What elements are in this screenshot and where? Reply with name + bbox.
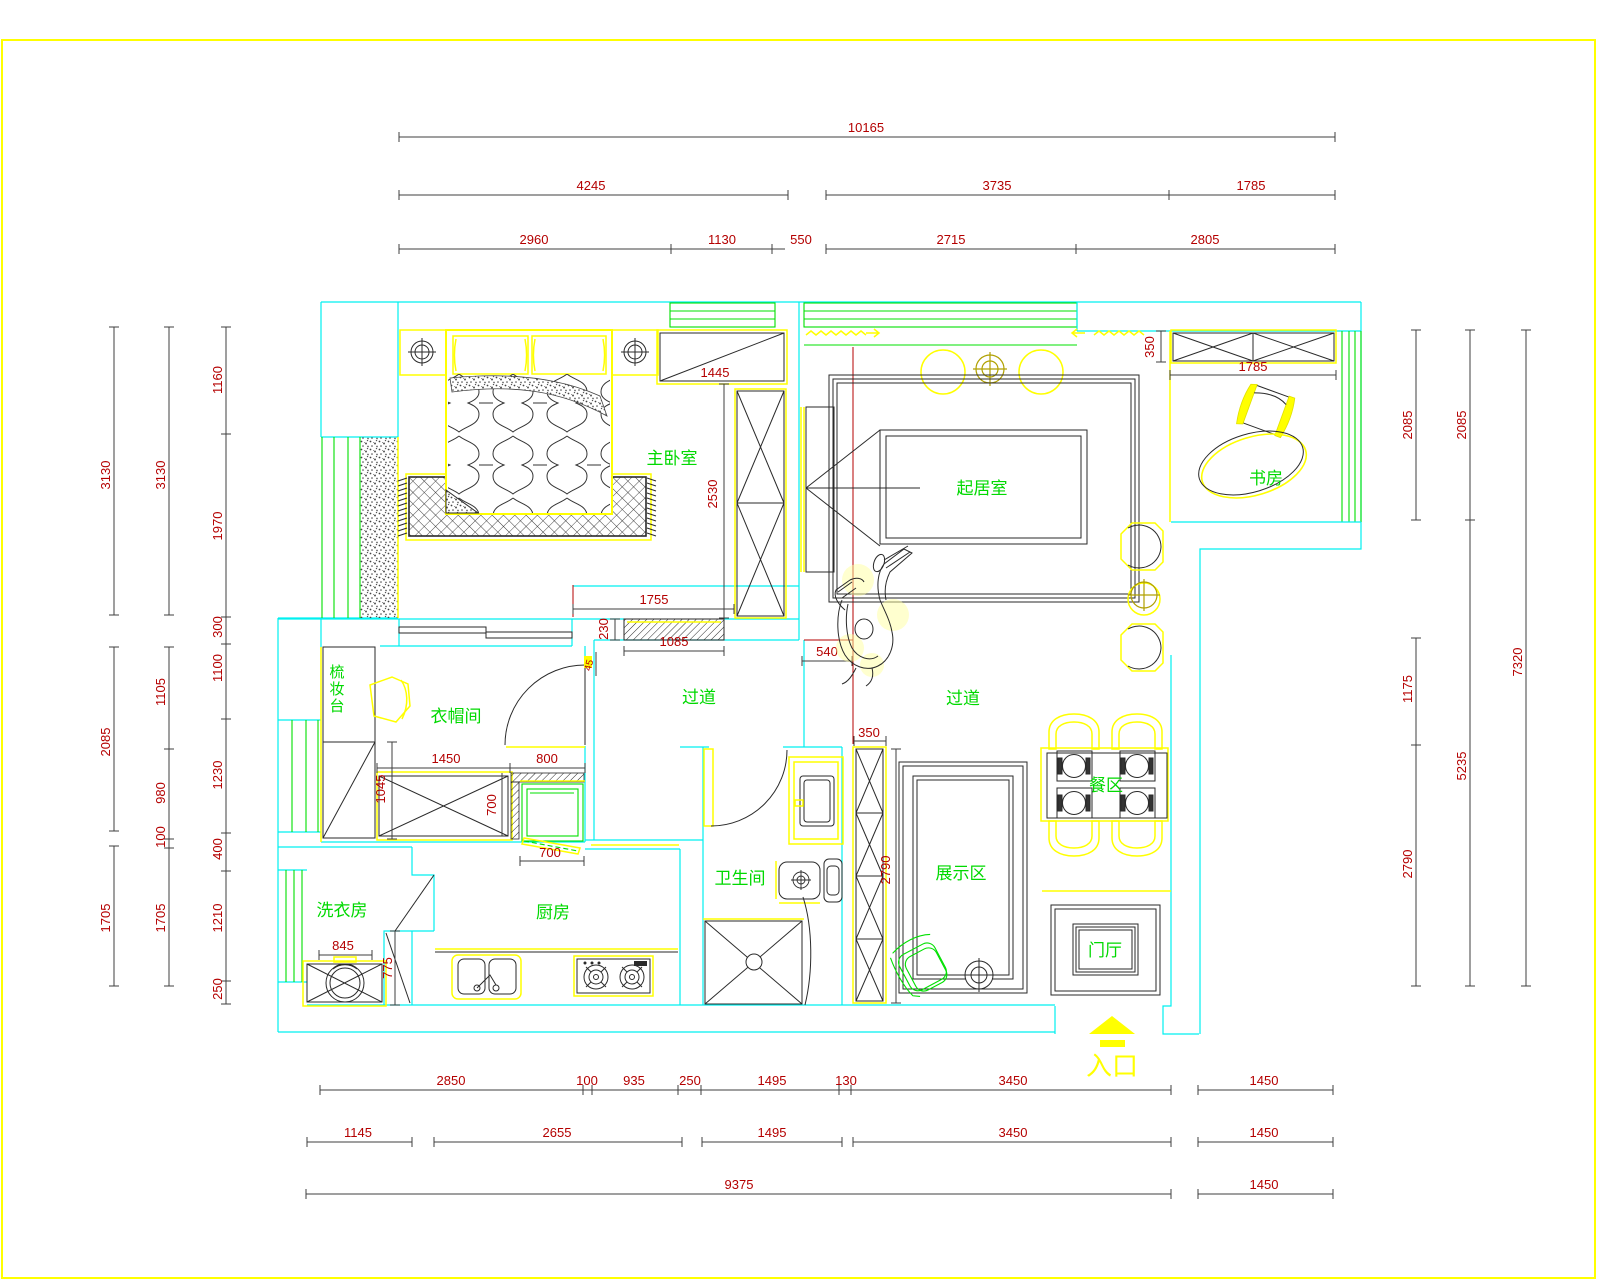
svg-text:2960: 2960 — [520, 232, 549, 247]
svg-text:2085: 2085 — [1400, 411, 1415, 440]
svg-text:门厅: 门厅 — [1088, 941, 1122, 960]
svg-text:主卧室: 主卧室 — [647, 449, 698, 468]
svg-text:1450: 1450 — [1250, 1073, 1279, 1088]
svg-text:7320: 7320 — [1510, 648, 1525, 677]
svg-text:130: 130 — [835, 1073, 857, 1088]
svg-text:3735: 3735 — [983, 178, 1012, 193]
svg-text:3450: 3450 — [999, 1125, 1028, 1140]
svg-text:845: 845 — [332, 938, 354, 953]
svg-text:9375: 9375 — [725, 1177, 754, 1192]
svg-text:1230: 1230 — [210, 761, 225, 790]
svg-text:1445: 1445 — [701, 365, 730, 380]
svg-text:1045: 1045 — [373, 775, 388, 804]
svg-text:10165: 10165 — [848, 120, 884, 135]
svg-text:洗衣房: 洗衣房 — [317, 901, 368, 920]
svg-text:1450: 1450 — [432, 751, 461, 766]
svg-text:3130: 3130 — [98, 461, 113, 490]
svg-text:2850: 2850 — [437, 1073, 466, 1088]
svg-text:550: 550 — [790, 232, 812, 247]
svg-text:1105: 1105 — [153, 678, 168, 706]
svg-text:700: 700 — [539, 845, 561, 860]
svg-text:2805: 2805 — [1191, 232, 1220, 247]
svg-text:230: 230 — [596, 618, 611, 640]
svg-text:700: 700 — [484, 794, 499, 816]
svg-text:100: 100 — [153, 826, 168, 848]
svg-text:1755: 1755 — [640, 592, 669, 607]
svg-text:2715: 2715 — [937, 232, 966, 247]
svg-text:1210: 1210 — [210, 904, 225, 933]
svg-text:1450: 1450 — [1250, 1125, 1279, 1140]
svg-text:2085: 2085 — [1454, 411, 1469, 440]
svg-text:餐区: 餐区 — [1089, 776, 1123, 795]
svg-text:1705: 1705 — [153, 904, 168, 933]
svg-text:100: 100 — [576, 1073, 598, 1088]
svg-text:1085: 1085 — [660, 634, 689, 649]
svg-text:1175: 1175 — [1400, 675, 1415, 703]
svg-text:800: 800 — [536, 751, 558, 766]
svg-text:过道: 过道 — [682, 688, 716, 707]
svg-text:4245: 4245 — [577, 178, 606, 193]
svg-text:3130: 3130 — [153, 461, 168, 490]
svg-text:1495: 1495 — [758, 1073, 787, 1088]
svg-text:350: 350 — [858, 725, 880, 740]
svg-text:梳: 梳 — [329, 664, 344, 681]
svg-text:1130: 1130 — [708, 232, 736, 247]
svg-text:1145: 1145 — [344, 1125, 372, 1140]
svg-text:2085: 2085 — [98, 728, 113, 757]
svg-text:5235: 5235 — [1454, 752, 1469, 781]
svg-text:250: 250 — [679, 1073, 701, 1088]
svg-text:1495: 1495 — [758, 1125, 787, 1140]
svg-text:775: 775 — [380, 957, 395, 979]
svg-text:2530: 2530 — [705, 480, 720, 509]
svg-text:衣帽间: 衣帽间 — [431, 707, 482, 726]
svg-text:厨房: 厨房 — [536, 903, 570, 922]
svg-text:980: 980 — [153, 782, 168, 804]
svg-text:1970: 1970 — [210, 512, 225, 541]
svg-text:2655: 2655 — [543, 1125, 572, 1140]
svg-text:935: 935 — [623, 1073, 645, 1088]
svg-text:2790: 2790 — [1400, 850, 1415, 879]
svg-text:展示区: 展示区 — [936, 864, 987, 883]
svg-text:1100: 1100 — [210, 654, 225, 682]
svg-text:起居室: 起居室 — [957, 479, 1008, 498]
svg-text:1450: 1450 — [1250, 1177, 1279, 1192]
svg-text:400: 400 — [210, 838, 225, 860]
svg-text:台: 台 — [329, 698, 344, 715]
svg-text:1785: 1785 — [1237, 178, 1266, 193]
svg-text:卫生间: 卫生间 — [715, 869, 766, 888]
svg-text:1160: 1160 — [210, 366, 225, 394]
svg-text:2790: 2790 — [878, 856, 893, 885]
svg-text:1705: 1705 — [98, 904, 113, 933]
svg-text:妆: 妆 — [329, 681, 344, 698]
svg-text:入口: 入口 — [1086, 1051, 1138, 1081]
svg-text:3450: 3450 — [999, 1073, 1028, 1088]
svg-text:350: 350 — [1142, 336, 1157, 358]
svg-text:540: 540 — [816, 644, 838, 659]
svg-text:1785: 1785 — [1239, 359, 1268, 374]
svg-text:250: 250 — [210, 978, 225, 1000]
svg-text:300: 300 — [210, 616, 225, 638]
svg-text:书房: 书房 — [1249, 469, 1283, 488]
svg-text:过道: 过道 — [946, 689, 980, 708]
